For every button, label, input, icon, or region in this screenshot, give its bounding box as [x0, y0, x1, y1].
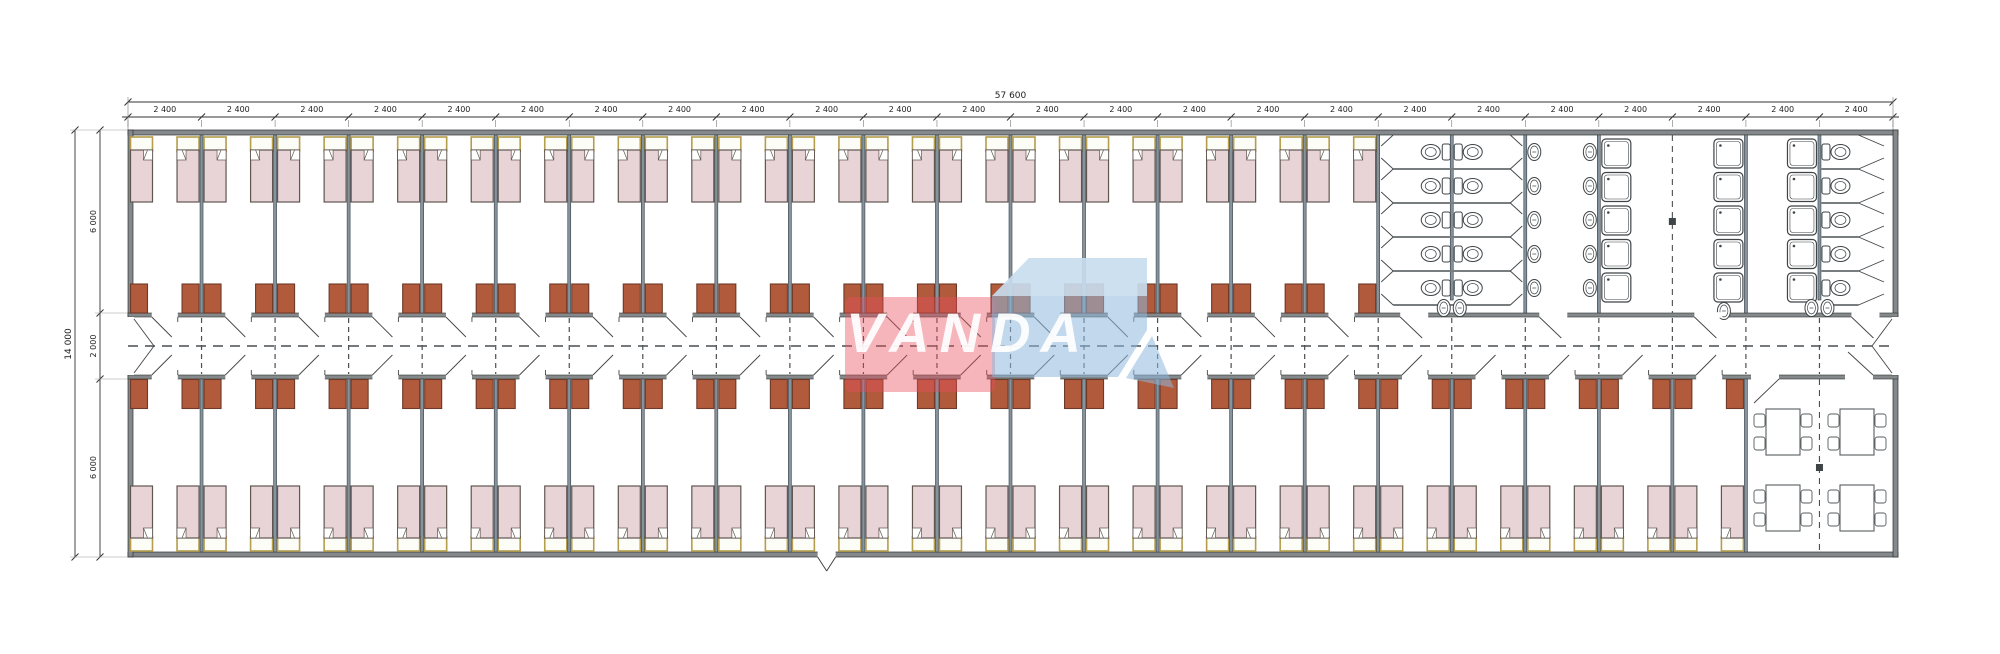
bed-pillow — [291, 528, 300, 538]
partition-wall — [641, 379, 644, 552]
wardrobe — [278, 284, 295, 313]
shower-tray — [1787, 273, 1816, 302]
bed-headboard — [1133, 137, 1155, 151]
bay-dimension-label: 2 400 — [1109, 105, 1132, 114]
bed-pillow — [471, 528, 480, 538]
door-leaf — [1872, 319, 1892, 346]
bed-pillow — [986, 528, 995, 538]
bed-pillow — [511, 528, 520, 538]
door-opening — [1181, 374, 1207, 380]
wardrobe — [403, 380, 420, 409]
bed-footboard — [986, 537, 1008, 551]
door-leaf — [134, 319, 154, 346]
partition-wall — [1303, 135, 1306, 313]
bed-pillow — [765, 150, 774, 160]
stall-door — [1510, 169, 1522, 180]
wardrobe — [623, 284, 640, 313]
bed-pillow — [839, 150, 848, 160]
bed-footboard — [792, 537, 814, 551]
toilet-bowl — [1421, 213, 1440, 228]
dining-table — [1840, 485, 1874, 531]
door-opening — [1694, 312, 1722, 318]
bed-footboard — [1354, 537, 1376, 551]
logo-pink-block — [845, 297, 995, 392]
partition-wall — [421, 135, 424, 313]
bed-footboard — [1087, 537, 1109, 551]
shower-drain — [1719, 211, 1722, 214]
bed-headboard — [351, 137, 373, 151]
bed-pillow — [839, 528, 848, 538]
wardrobe — [204, 380, 221, 409]
bed-footboard — [645, 537, 667, 551]
toilet-tank — [1822, 246, 1830, 262]
toilet-bowl — [1463, 281, 1482, 296]
bed-headboard — [1234, 137, 1256, 151]
chair — [1754, 513, 1765, 526]
bed-pillow — [177, 528, 186, 538]
shower-tray — [1714, 240, 1743, 269]
wardrobe — [550, 284, 567, 313]
bed-footboard — [719, 537, 741, 551]
bay-dimension-label: 2 400 — [962, 105, 985, 114]
entrance-door-leaf — [827, 557, 836, 571]
chair — [1828, 437, 1839, 450]
bed-headboard — [692, 137, 714, 151]
toilet-bowl — [1831, 247, 1850, 262]
shower-drain — [1607, 211, 1610, 214]
stall-door — [1381, 203, 1393, 214]
bed-pillow — [692, 528, 701, 538]
door-leaf — [519, 355, 539, 375]
door-opening — [667, 312, 693, 318]
wardrobe — [1212, 284, 1229, 313]
door-opening — [372, 312, 398, 318]
bed-pillow — [545, 528, 554, 538]
bay-dimension-label: 2 400 — [1256, 105, 1279, 114]
stall-door — [1381, 192, 1393, 203]
shower-drain — [1793, 178, 1796, 181]
bed-footboard — [1013, 537, 1035, 551]
bed-footboard — [1160, 537, 1182, 551]
door-leaf — [225, 355, 245, 375]
bay-dimension-label: 2 400 — [595, 105, 618, 114]
bed-footboard — [1133, 537, 1155, 551]
bed-pillow — [1354, 150, 1363, 160]
bay-dimension-label: 2 400 — [1330, 105, 1353, 114]
stall-divider — [1393, 236, 1510, 238]
partition-wall — [935, 379, 938, 552]
door-opening — [1845, 374, 1873, 380]
door-leaf — [446, 317, 466, 337]
bed-headboard — [1087, 137, 1109, 151]
shower-drain — [1607, 178, 1610, 181]
door-leaf — [1181, 317, 1201, 337]
bed-headboard — [425, 137, 447, 151]
bay-dimension-label: 2 400 — [153, 105, 176, 114]
segment-label: 6 000 — [89, 456, 98, 479]
door-leaf — [299, 355, 319, 375]
chair — [1828, 490, 1839, 503]
stall-door — [1858, 169, 1884, 180]
partition-wall — [568, 135, 571, 313]
door-opening — [446, 312, 472, 318]
bed-footboard — [1427, 537, 1449, 551]
bed-footboard — [1721, 537, 1743, 551]
bed-pillow — [1427, 528, 1436, 538]
door-leaf — [152, 355, 172, 375]
door-opening — [446, 374, 472, 380]
wardrobe — [1506, 380, 1523, 409]
wardrobe — [256, 380, 273, 409]
bed-pillow — [1541, 528, 1550, 538]
wardrobe — [1359, 284, 1376, 313]
bed-pillow — [1247, 150, 1256, 160]
stall-door — [1510, 192, 1522, 203]
bed-pillow — [1501, 528, 1510, 538]
wardrobe — [719, 284, 736, 313]
door-opening — [1476, 374, 1502, 380]
door-leaf — [1694, 317, 1716, 338]
bed-footboard — [1307, 537, 1329, 551]
stall-door — [1510, 294, 1522, 305]
exterior-wall-bottom — [128, 552, 1898, 557]
bed-footboard — [324, 537, 346, 551]
door-leaf — [667, 317, 687, 337]
bed-headboard — [1354, 137, 1376, 151]
bed-pillow — [438, 528, 447, 538]
bed-headboard — [1160, 137, 1182, 151]
height-dimension-label: 14 000 — [64, 328, 74, 360]
toilet-bowl — [1463, 247, 1482, 262]
wardrobe — [1528, 380, 1545, 409]
bed-pillow — [986, 150, 995, 160]
shower-tray — [1787, 173, 1816, 202]
bed-pillow — [324, 150, 333, 160]
stall-door — [1381, 135, 1393, 146]
bed-headboard — [324, 137, 346, 151]
bed-footboard — [204, 537, 226, 551]
door-leaf — [446, 355, 466, 375]
stall-divider — [1821, 270, 1858, 272]
bed-pillow — [1614, 528, 1623, 538]
chair — [1828, 513, 1839, 526]
partition-wall — [1744, 135, 1747, 313]
bay-dimension-label: 2 400 — [1477, 105, 1500, 114]
toilet-bowl — [1831, 145, 1850, 160]
toilet-bowl — [1421, 179, 1440, 194]
partition-wall — [568, 379, 571, 552]
wardrobe — [1087, 380, 1104, 409]
partition-wall — [1377, 135, 1380, 313]
wardrobe — [1013, 380, 1030, 409]
chair — [1801, 414, 1812, 427]
door-leaf — [740, 355, 760, 375]
bed-headboard — [572, 137, 594, 151]
bed-headboard — [912, 137, 934, 151]
bed-pillow — [1173, 150, 1182, 160]
chair — [1875, 490, 1886, 503]
door-leaf — [593, 355, 613, 375]
stall-door — [1510, 226, 1522, 237]
wardrobe — [1601, 380, 1618, 409]
shower-tray — [1602, 173, 1631, 202]
door-opening — [1549, 374, 1575, 380]
shower-drain — [1793, 144, 1796, 147]
stall-door — [1381, 158, 1393, 169]
bed-headboard — [866, 137, 888, 151]
shower-drain — [1719, 178, 1722, 181]
stall-door — [1381, 294, 1393, 305]
door-leaf — [372, 355, 392, 375]
vanda-watermark — [845, 258, 1174, 392]
bay-dimension-label: 2 400 — [889, 105, 912, 114]
bed-footboard — [939, 537, 961, 551]
wardrobe — [1138, 380, 1155, 409]
stall-door — [1858, 271, 1884, 282]
door-leaf — [1476, 355, 1496, 375]
wardrobe — [697, 284, 714, 313]
bed-pillow — [1648, 528, 1657, 538]
door-opening — [1751, 374, 1779, 380]
bed-headboard — [471, 137, 493, 151]
bed-footboard — [1501, 537, 1523, 551]
door-leaf — [1255, 317, 1275, 337]
bed-pillow — [732, 150, 741, 160]
toilet-tank — [1442, 178, 1450, 194]
wardrobe — [1579, 380, 1596, 409]
partition-wall — [200, 135, 203, 313]
wardrobe — [1307, 380, 1324, 409]
toilet-tank — [1454, 280, 1462, 296]
toilet-tank — [1822, 144, 1830, 160]
door-opening — [1623, 374, 1649, 380]
bed-headboard — [986, 137, 1008, 151]
wardrobe — [1160, 284, 1177, 313]
wardrobe — [204, 284, 221, 313]
bed-pillow — [805, 150, 814, 160]
door-opening — [1851, 312, 1879, 318]
bed-footboard — [498, 537, 520, 551]
shower-tray — [1714, 173, 1743, 202]
door-opening — [1181, 312, 1207, 318]
toilet-tank — [1822, 178, 1830, 194]
chair — [1754, 490, 1765, 503]
shower-drain — [1719, 245, 1722, 248]
stall-door — [1510, 203, 1522, 214]
bed-pillow — [585, 150, 594, 160]
stall-door — [1381, 271, 1393, 282]
bed-footboard — [1454, 537, 1476, 551]
partition-wall — [1156, 379, 1159, 552]
bed-pillow — [912, 150, 921, 160]
bed-footboard — [1381, 537, 1403, 551]
door-opening — [1328, 374, 1354, 380]
door-opening — [740, 374, 766, 380]
bed-pillow — [732, 528, 741, 538]
bed-headboard — [939, 137, 961, 151]
shower-drain — [1607, 144, 1610, 147]
wardrobe — [498, 380, 515, 409]
toilet-tank — [1454, 144, 1462, 160]
wardrobe — [1653, 380, 1670, 409]
door-leaf — [1328, 355, 1348, 375]
stall-divider — [1821, 202, 1858, 204]
wardrobe — [1307, 284, 1324, 313]
toilet-tank — [1822, 212, 1830, 228]
chair — [1801, 437, 1812, 450]
door-leaf — [134, 346, 154, 373]
door-leaf — [372, 317, 392, 337]
bed-headboard — [645, 137, 667, 151]
wardrobe — [697, 380, 714, 409]
door-leaf — [225, 317, 245, 337]
bay-dimension-label: 2 400 — [1183, 105, 1206, 114]
bed-pillow — [398, 528, 407, 538]
wardrobe — [329, 284, 346, 313]
stall-door — [1510, 237, 1522, 248]
bed-footboard — [839, 537, 861, 551]
wardrobe — [256, 284, 273, 313]
bed-pillow — [1026, 150, 1035, 160]
partition-wall — [1818, 135, 1821, 300]
segment-label: 2 000 — [89, 335, 98, 358]
partition-wall — [1230, 135, 1233, 313]
partition-wall — [862, 135, 865, 313]
wardrobe — [1381, 380, 1398, 409]
door-opening — [593, 312, 619, 318]
stall-door — [1858, 294, 1884, 305]
bed-headboard — [545, 137, 567, 151]
bed-pillow — [1100, 150, 1109, 160]
bed-pillow — [545, 150, 554, 160]
shower-tray — [1714, 273, 1743, 302]
bed-headboard — [618, 137, 640, 151]
bay-dimension-label: 2 400 — [1551, 105, 1574, 114]
partition-wall — [494, 135, 497, 313]
bay-dimension-label: 2 400 — [1845, 105, 1868, 114]
stall-door — [1858, 158, 1884, 169]
wardrobe — [131, 380, 148, 409]
toilet-tank — [1442, 246, 1450, 262]
bed-pillow — [952, 528, 961, 538]
bed-pillow — [618, 150, 627, 160]
wardrobe — [278, 380, 295, 409]
bed-pillow — [1574, 528, 1583, 538]
wardrobe — [572, 284, 589, 313]
door-leaf — [1623, 355, 1643, 375]
bed-pillow — [217, 528, 226, 538]
partition-wall — [641, 135, 644, 313]
toilet-bowl — [1421, 247, 1440, 262]
wardrobe — [476, 380, 493, 409]
partition-wall — [1744, 379, 1747, 552]
sanitary-block — [1377, 135, 1884, 338]
toilet-bowl — [1421, 145, 1440, 160]
bed-headboard — [839, 137, 861, 151]
logo-blue-fold — [992, 258, 1147, 296]
bay-dimension-label: 2 400 — [1624, 105, 1647, 114]
door-leaf — [667, 355, 687, 375]
bed-footboard — [692, 537, 714, 551]
chair — [1828, 414, 1839, 427]
door-opening — [1328, 312, 1354, 318]
wardrobe — [1065, 380, 1082, 409]
wardrobe — [645, 284, 662, 313]
bed-headboard — [1207, 137, 1229, 151]
door-leaf — [593, 317, 613, 337]
bed-headboard — [1060, 137, 1082, 151]
stall-door — [1510, 135, 1522, 146]
stall-divider — [1821, 236, 1858, 238]
door-leaf — [1539, 317, 1561, 338]
bed-headboard — [398, 137, 420, 151]
stall-door — [1381, 226, 1393, 237]
entrance-door-leaf — [818, 557, 827, 571]
bed-pillow — [1280, 150, 1289, 160]
door-opening — [152, 374, 178, 380]
wardrobe — [1234, 380, 1251, 409]
bed-footboard — [618, 537, 640, 551]
stall-door — [1858, 260, 1884, 271]
bed-pillow — [1207, 528, 1216, 538]
bed-pillow — [1721, 528, 1730, 538]
bed-pillow — [438, 150, 447, 160]
partition-wall — [1597, 379, 1600, 552]
bed-pillow — [1133, 150, 1142, 160]
bed-headboard — [1307, 137, 1329, 151]
wardrobe — [182, 380, 199, 409]
bed-pillow — [144, 150, 153, 160]
shower-tray — [1602, 139, 1631, 168]
bay-dimension-label: 2 400 — [227, 105, 250, 114]
bed-headboard — [131, 137, 153, 151]
partition-wall — [1009, 379, 1012, 552]
bed-pillow — [511, 150, 520, 160]
toilet-bowl — [1831, 179, 1850, 194]
bed-pillow — [144, 528, 153, 538]
stall-door — [1858, 203, 1884, 214]
door-opening — [593, 374, 619, 380]
bed-pillow — [364, 528, 373, 538]
door-opening — [519, 374, 545, 380]
partition-wall — [715, 379, 718, 552]
entrance-opening — [818, 551, 836, 558]
bed-headboard — [1280, 137, 1302, 151]
chair — [1875, 437, 1886, 450]
partition-wall — [1671, 379, 1674, 552]
shower-drain — [1607, 245, 1610, 248]
bed-footboard — [425, 537, 447, 551]
chair — [1754, 437, 1765, 450]
bed-pillow — [585, 528, 594, 538]
partition-wall — [421, 379, 424, 552]
bed-footboard — [545, 537, 567, 551]
grid-marker — [1669, 218, 1676, 225]
bed-footboard — [1574, 537, 1596, 551]
shower-drain — [1793, 211, 1796, 214]
door-opening — [225, 374, 251, 380]
bed-footboard — [398, 537, 420, 551]
partition-wall — [862, 379, 865, 552]
door-opening — [1696, 374, 1722, 380]
wardrobe — [498, 284, 515, 313]
bed-pillow — [1133, 528, 1142, 538]
stall-door — [1858, 192, 1884, 203]
bed-pillow — [618, 528, 627, 538]
door-opening — [814, 374, 840, 380]
door-opening — [372, 374, 398, 380]
door-opening — [740, 312, 766, 318]
